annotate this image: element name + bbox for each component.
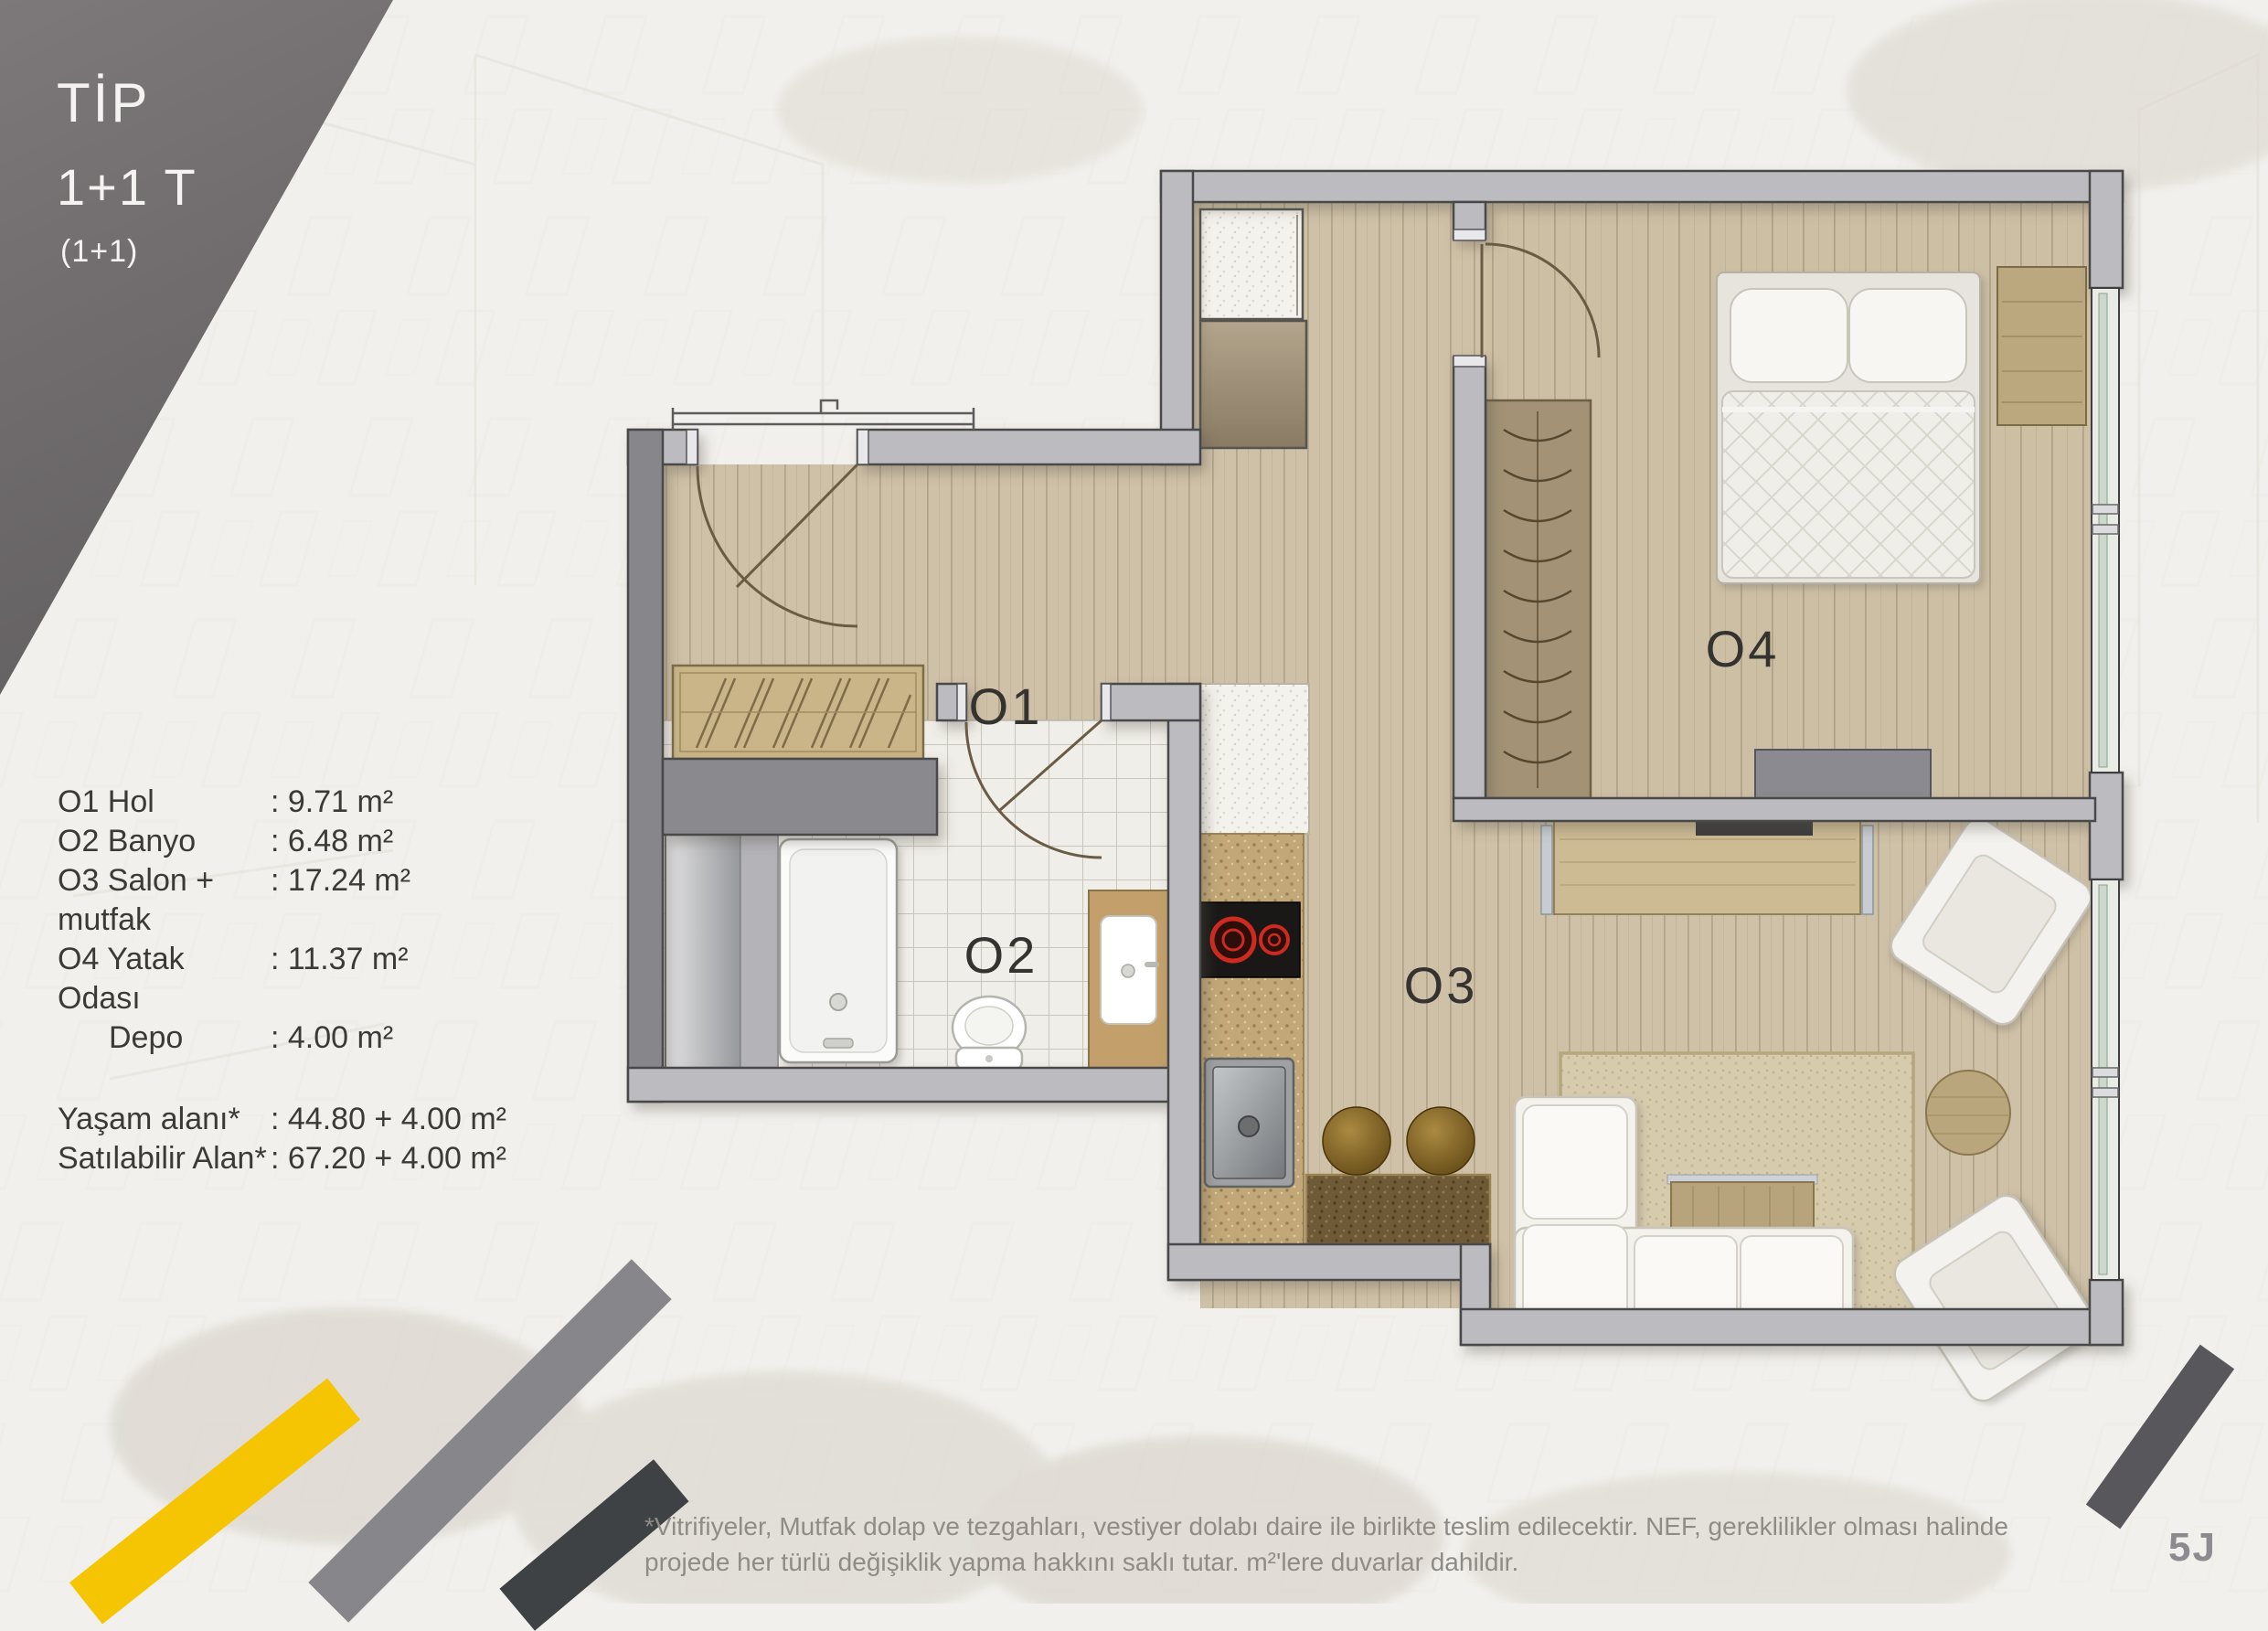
legend-gap — [58, 1058, 570, 1100]
burner-large — [1212, 919, 1254, 961]
legend-value: : 44.80 + 4.00 m² — [271, 1100, 506, 1139]
wall-right-bottom-corner — [2090, 1280, 2123, 1345]
bedroom-window — [2092, 288, 2119, 773]
bar-counter — [1306, 1175, 1490, 1244]
console-bracket — [1541, 826, 1552, 914]
legend-label: O1 Hol — [58, 783, 271, 822]
page-title-value: 1+1 T — [57, 157, 197, 217]
legend-row: O4 Yatak Odası : 11.37 m² — [58, 940, 570, 1018]
kitchen-counter — [1200, 684, 1309, 1262]
shaft-partition — [740, 803, 778, 1068]
sink-drain — [1239, 1116, 1259, 1136]
wall-bath-right — [1168, 684, 1200, 1280]
duvet — [1722, 391, 1975, 578]
storage-depo-floor — [1200, 209, 1303, 319]
burner-small — [1261, 926, 1288, 954]
wall-upper-left — [1161, 171, 1193, 464]
legend-row: Depo : 4.00 m² — [58, 1018, 570, 1058]
wall-right-junction — [2090, 773, 2123, 879]
cooktop — [1200, 902, 1300, 977]
wall-bath-bottom — [628, 1068, 1200, 1102]
storage-cabinet — [1200, 321, 1306, 448]
wall-bath-top-right — [1102, 684, 1200, 720]
wall-bedroom-bottom — [1453, 798, 2095, 821]
legend-row: O2 Banyo : 6.48 m² — [58, 822, 570, 861]
legend-label: O4 Yatak Odası — [58, 940, 271, 1018]
wardrobe — [1485, 400, 1591, 798]
wall-right-top-corner — [2090, 171, 2123, 288]
bedroom-dresser — [1755, 750, 1931, 798]
basin-drain — [1122, 965, 1134, 977]
window-mullion — [2092, 525, 2118, 534]
pillow — [1849, 289, 1966, 382]
window-mullion — [2092, 505, 2118, 514]
legend-value: : 17.24 m² — [271, 861, 410, 940]
legend-total-row: Satılabilir Alan* : 67.20 + 4.00 m² — [58, 1139, 570, 1178]
page-title-sub: (1+1) — [60, 234, 138, 270]
legend-value: : 11.37 m² — [271, 940, 409, 1018]
wall-living-bottom — [1461, 1309, 2123, 1345]
toilet — [953, 997, 1026, 1070]
shoe-rack — [673, 666, 923, 759]
sofa-cushion — [1523, 1105, 1627, 1219]
disclaimer-line-2: projede her türlü değişiklik yapma hakkı… — [644, 1544, 2125, 1580]
legend-label: O2 Banyo — [58, 822, 271, 861]
legend-label: Depo — [58, 1018, 271, 1058]
wall-left — [628, 430, 663, 1102]
side-table — [1926, 1071, 2010, 1155]
kitchen-sink — [1205, 1059, 1294, 1187]
wall-top — [1161, 171, 2123, 202]
legend-label: Satılabilir Alan* — [58, 1139, 271, 1178]
page-code: 5J — [2168, 1525, 2217, 1571]
room-label-o1: O1 — [969, 677, 1043, 735]
room-label-o2: O2 — [964, 926, 1038, 984]
legend-label: O3 Salon + mutfak — [58, 861, 271, 940]
legend-row: O3 Salon + mutfak : 17.24 m² — [58, 861, 570, 940]
disclaimer: *Vitrifiyeler, Mutfak dolap ve tezgahlar… — [644, 1508, 2125, 1580]
area-legend: O1 Hol : 9.71 m² O2 Banyo : 6.48 m² O3 S… — [58, 783, 570, 1178]
living-room-window — [2092, 879, 2119, 1280]
counter-worktop — [1200, 834, 1304, 1262]
legend-label: Yaşam alanı* — [58, 1100, 271, 1139]
toilet-flush-button — [985, 1055, 993, 1062]
window-mullion — [2092, 1088, 2118, 1097]
page-title-type: TİP — [57, 71, 150, 134]
bathtub — [780, 839, 897, 1062]
pillow — [1730, 289, 1847, 382]
bed — [1717, 272, 1980, 583]
room-label-o3: O3 — [1404, 956, 1478, 1014]
brochure-page: { "header": { "type_label": "TİP", "type… — [0, 0, 2268, 1604]
wall-bedroom-left — [1453, 357, 1485, 798]
legend-value: : 6.48 m² — [271, 822, 393, 861]
vanity-sink — [1089, 890, 1168, 1073]
tv-console — [1541, 816, 1873, 914]
basin-faucet — [1145, 962, 1159, 967]
legend-value: : 67.20 + 4.00 m² — [271, 1139, 506, 1178]
console-bracket — [1862, 826, 1873, 914]
tub-drain — [830, 994, 847, 1010]
legend-row: O1 Hol : 9.71 m² — [58, 783, 570, 822]
duct-shaft — [665, 803, 740, 1068]
bar-stool — [1323, 1107, 1390, 1175]
room-label-o4: O4 — [1706, 620, 1780, 677]
counter-marble — [1200, 684, 1309, 834]
window-mullion — [2092, 1068, 2118, 1077]
wall-hall-bath — [663, 759, 937, 835]
wall-entry-right — [857, 430, 1200, 464]
wall-kitchen-bottom — [1168, 1244, 1490, 1280]
disclaimer-line-1: *Vitrifiyeler, Mutfak dolap ve tezgahlar… — [644, 1508, 2125, 1544]
legend-total-row: Yaşam alanı* : 44.80 + 4.00 m² — [58, 1100, 570, 1139]
nightstand — [1997, 267, 2086, 425]
legend-value: : 9.71 m² — [271, 783, 393, 822]
legend-value: : 4.00 m² — [271, 1018, 393, 1058]
tub-faucet — [824, 1039, 853, 1048]
bar-stool — [1407, 1107, 1475, 1175]
